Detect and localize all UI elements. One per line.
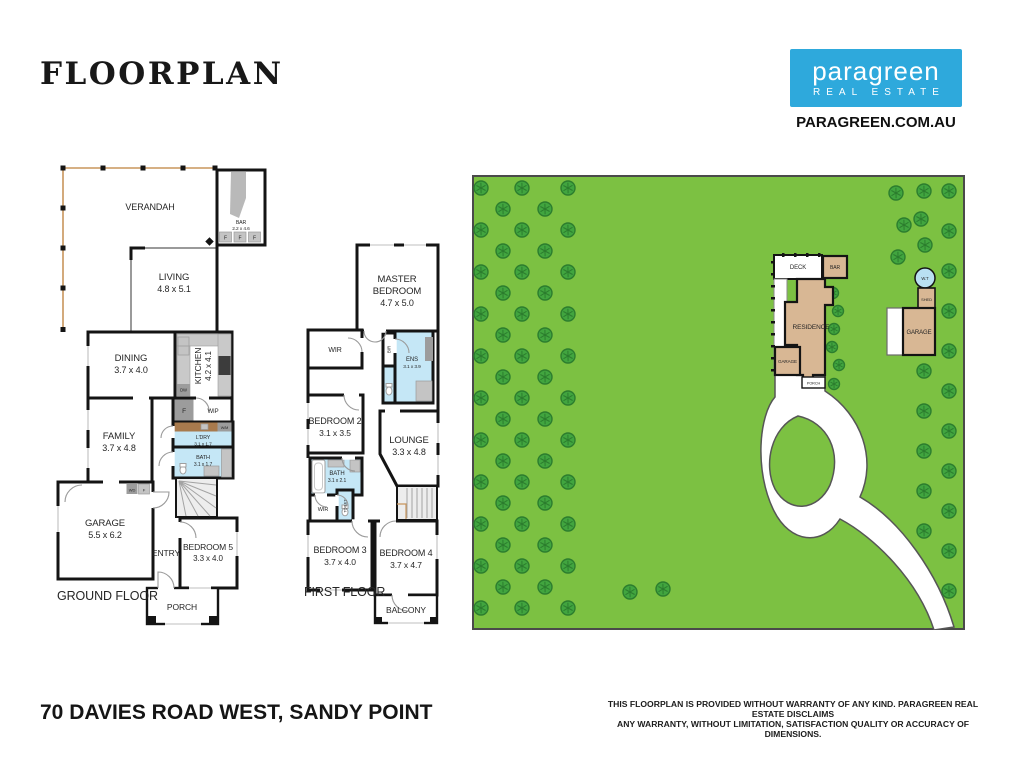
site-label-garage-detached: GARAGE [906,330,931,336]
room-dims-lounge: 3.3 x 4.8 [392,447,426,457]
room-dims-bath2: 3.1 x 2.1 [328,478,347,484]
tree-icon [474,265,488,279]
tree-icon [496,202,510,216]
tree-icon [917,524,931,538]
room-dims-living: 4.8 x 5.1 [157,284,191,294]
room-label-balcony: BALCONY [386,605,426,615]
tree-icon [515,265,529,279]
tree-icon [897,218,911,232]
room-label-bedroom5: BEDROOM 5 [183,542,233,552]
tree-icon [917,484,931,498]
site-label-bar: BAR [830,265,840,271]
tree-icon [561,601,575,615]
tree-icon [561,475,575,489]
tree-icon [496,244,510,258]
fixture-label-wm: W/M [221,426,229,430]
room-label-bath: BATH [196,455,210,461]
room-dims-bedroom2: 3.1 x 3.5 [319,428,351,438]
room-label-bedroom3: BEDROOM 3 [313,545,366,555]
tree-icon [561,307,575,321]
site-plan: DECK BAR RESIDENCE GARAGE PORCH W.T SHED… [472,175,965,630]
room-dims-bedroom5: 3.3 x 4.0 [193,554,223,563]
tree-icon [827,342,838,353]
tree-icon [942,304,956,318]
room-bedroom5 [180,518,237,588]
room-label-bir-group: BIR [387,345,392,353]
room-dims-master: 4.7 x 5.0 [380,298,414,308]
room-bedroom4 [375,521,437,595]
tree-icon [515,517,529,531]
tree-icon [942,584,956,598]
room-label-family: FAMILY [103,431,136,442]
ground-floor-plan: VERANDAH LIVING 4.8 x 5.1 BAR 2.2 x 4.6 … [55,160,270,645]
tree-icon [538,286,552,300]
tree-icon [942,384,956,398]
tree-icon [538,454,552,468]
stairs [397,486,437,520]
tree-icon [515,475,529,489]
tree-icon [515,391,529,405]
tree-icon [496,454,510,468]
brand-logo: paragreen REAL ESTATE PARAGREEN.COM.AU [790,49,962,131]
tree-icon [656,582,670,596]
tree-icon [942,464,956,478]
bar-post [205,237,213,245]
room-label-living: LIVING [159,272,190,283]
room-label-garage: GARAGE [85,518,125,529]
tree-icon [538,412,552,426]
room-label-wir-master: WIR [328,347,341,354]
room-label-bath2: BATH [329,471,344,477]
site-label-water-tank: W.T [921,276,929,281]
room-dims-bath: 3.1 x 1.7 [194,462,213,468]
room-label-bar: BAR [236,220,247,226]
room-label-toilet-group: TOILET [343,499,348,513]
room-dims-bedroom3: 3.7 x 4.0 [324,557,356,567]
fixture-label-wd: WD [129,488,136,493]
brand-name: paragreen [812,58,940,84]
tree-icon [917,404,931,418]
site-garage-carport [887,308,903,355]
tree-icon [561,391,575,405]
site-label-residence: RESIDENCE [792,324,830,331]
stairs [176,478,217,517]
tree-icon [942,264,956,278]
brand-website: PARAGREEN.COM.AU [790,114,962,131]
site-label-garage-attached: GARAGE [778,359,797,364]
room-label-bedroom4: BEDROOM 4 [379,548,432,558]
tree-icon [917,184,931,198]
fixture-label-dw: DW [180,388,187,393]
tree-icon [914,212,928,226]
tree-icon [515,307,529,321]
tree-icon [496,412,510,426]
tree-icon [538,496,552,510]
room-label-entry: ENTRY [152,548,181,558]
tree-icon [474,559,488,573]
room-bedroom3 [308,521,372,590]
room-dims-bedroom4: 3.7 x 4.7 [390,560,422,570]
floor-label-first: FIRST FLOOR [304,585,385,599]
tree-icon [496,496,510,510]
tree-icon [474,517,488,531]
room-label-porch: PORCH [167,602,197,612]
room-label-wip: WIP [207,409,218,415]
tree-icon [623,585,637,599]
room-label-ldry: L'DRY [196,435,211,441]
room-label-verandah: VERANDAH [125,202,174,212]
tree-icon [515,559,529,573]
tree-icon [474,349,488,363]
property-address: 70 DAVIES ROAD WEST, SANDY POINT [40,701,432,725]
tree-icon [496,328,510,342]
tree-icon [474,223,488,237]
tree-icon [561,181,575,195]
fixture-label-f: F [224,236,227,242]
room-dims-ens: 3.1 x 3.9 [403,364,421,370]
tree-icon [474,307,488,321]
fixture-label-f: F [253,236,256,242]
disclaimer: THIS FLOORPLAN IS PROVIDED WITHOUT WARRA… [598,699,988,739]
tree-icon [538,370,552,384]
tree-icon [474,475,488,489]
tree-icon [538,580,552,594]
tree-icon [942,424,956,438]
first-floor-plan: MASTER BEDROOM 4.7 x 5.0 WIR BIR ENS 3.1… [300,243,455,633]
tree-icon [942,544,956,558]
room-dims-dining: 3.7 x 4.0 [114,365,148,375]
tree-icon [891,250,905,264]
tree-icon [942,224,956,238]
tree-icon [538,244,552,258]
tree-icon [538,202,552,216]
tree-icon [474,601,488,615]
tree-icon [917,444,931,458]
room-dims-bar: 2.2 x 4.6 [232,226,250,232]
tree-icon [561,517,575,531]
tree-icon [496,286,510,300]
tree-icon [942,504,956,518]
disclaimer-line-2: ANY WARRANTY, WITHOUT LIMITATION, SATISF… [598,719,988,739]
room-label-wir2: WIR [318,507,329,513]
room-dims-family: 3.7 x 4.8 [102,443,136,453]
floor-label-ground: GROUND FLOOR [57,589,158,603]
tree-icon [889,186,903,200]
tree-icon [918,238,932,252]
tree-icon [496,538,510,552]
tree-icon [829,324,840,335]
tree-icon [834,360,845,371]
tree-icon [942,344,956,358]
tree-icon [561,433,575,447]
room-label-bedroom2: BEDROOM 2 [308,416,361,426]
tree-icon [561,223,575,237]
room-label-master-1: MASTER [378,274,417,285]
fixture-label-fridge: F [182,408,186,415]
tree-icon [538,328,552,342]
room-dims-ldry: 3.1 x 1.7 [194,442,212,448]
tree-icon [829,379,840,390]
tree-icon [833,306,844,317]
tree-icon [515,349,529,363]
tree-icon [496,370,510,384]
stove-icon [219,356,231,375]
room-dims-garage: 5.5 x 6.2 [88,530,122,540]
room-label-dining: DINING [115,353,148,364]
tree-icon [515,223,529,237]
disclaimer-line-1: THIS FLOORPLAN IS PROVIDED WITHOUT WARRA… [598,699,988,719]
tree-icon [561,559,575,573]
room-label-ens: ENS [406,357,418,363]
tree-icon [917,364,931,378]
fixture-label-f: F [239,236,242,242]
tree-icon [496,580,510,594]
room-label-bir: BIR [387,345,392,353]
tree-icon [474,181,488,195]
tree-icon [515,181,529,195]
room-label-kitchen: KITCHEN [193,348,203,385]
room-label-master-2: BEDROOM [373,286,422,297]
brand-subtitle: REAL ESTATE [807,87,945,98]
tree-icon [474,433,488,447]
tree-icon [561,265,575,279]
page-title: FLOORPLAN [40,56,284,92]
site-label-shed: SHED [921,297,932,302]
tree-icon [515,601,529,615]
site-label-porch: PORCH [807,382,821,386]
site-label-deck: DECK [790,265,806,271]
tree-icon [515,433,529,447]
room-label-lounge: LOUNGE [389,435,429,446]
tree-icon [561,349,575,363]
brand-logo-box: paragreen REAL ESTATE [790,49,962,107]
tree-icon [474,391,488,405]
tree-icon [538,538,552,552]
room-label-toilet: TOILET [343,499,348,513]
tree-icon [942,184,956,198]
room-dims-kitchen: 4.2 x 4.1 [204,350,213,380]
